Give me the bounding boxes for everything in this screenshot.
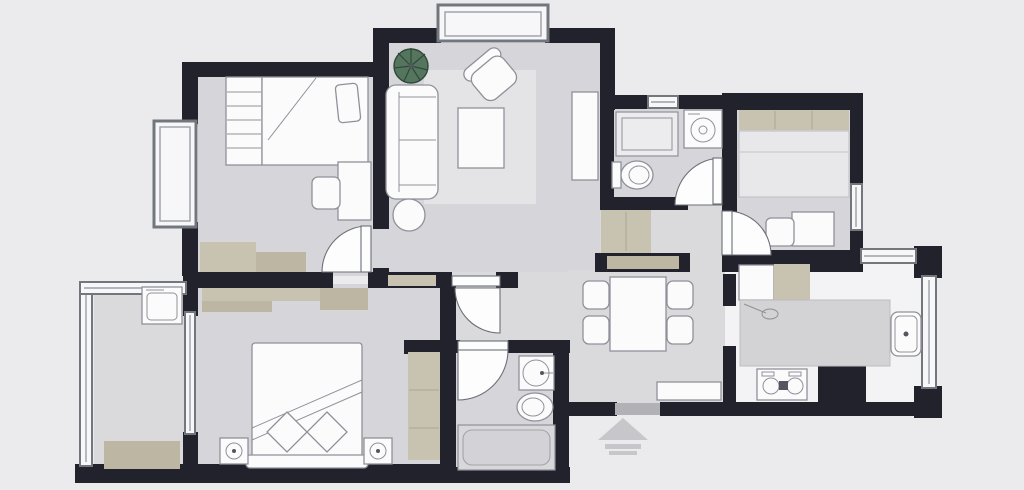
wardrobe: [202, 301, 272, 312]
headboard: [246, 455, 368, 468]
cabinet: [200, 242, 256, 272]
sink-drain: [904, 332, 909, 337]
wall: [183, 432, 198, 468]
wall: [182, 62, 198, 124]
dining-chair: [583, 316, 609, 344]
entry-threshold: [615, 403, 660, 415]
door-leaf: [458, 341, 508, 350]
door-leaf: [713, 158, 722, 204]
side-table: [393, 199, 425, 231]
faucet-head: [540, 371, 544, 375]
wall: [850, 93, 863, 186]
wall: [373, 28, 441, 43]
wardrobe: [739, 110, 849, 130]
door-leaf: [452, 276, 500, 286]
toilet-tank: [612, 162, 621, 188]
door-leaf: [361, 226, 371, 272]
wall: [440, 286, 456, 482]
wall-wardrobe-cap: [404, 340, 456, 354]
kitchen-cabinet: [774, 264, 810, 300]
bay-window-left: [154, 121, 198, 227]
nightstand-lamp-center: [376, 449, 380, 453]
sideboard: [607, 256, 679, 269]
wall: [183, 272, 333, 288]
wall-kitchen-slider-jamb: [723, 274, 736, 306]
wall: [914, 386, 942, 418]
desk-chair: [312, 177, 340, 209]
kitchen-counter: [740, 300, 890, 366]
shower-tray: [616, 112, 678, 156]
nightstand-lamp-center: [232, 449, 236, 453]
cabinet: [320, 288, 368, 310]
wall: [722, 93, 863, 110]
plant-center: [409, 64, 414, 69]
toilet: [621, 161, 653, 189]
desk-chair: [766, 218, 794, 246]
arrow-bar: [609, 451, 637, 455]
floor-mat: [104, 441, 180, 469]
tall-wardrobe: [408, 352, 440, 460]
wall: [508, 340, 570, 353]
cabinet: [256, 252, 306, 272]
bed: [739, 131, 849, 197]
dining-chair: [667, 281, 693, 309]
wall: [818, 366, 866, 404]
wall-kitchen-slider-jamb: [723, 346, 736, 404]
stove-control: [779, 381, 788, 390]
desk: [792, 212, 834, 246]
desk: [338, 162, 371, 220]
floor-plan: [0, 0, 1024, 490]
dining-table: [610, 277, 666, 351]
dining-chair: [667, 316, 693, 344]
bathtub-inner: [463, 430, 550, 465]
wall: [914, 246, 942, 278]
bay-window-top: [438, 5, 548, 43]
arrow-bar: [605, 444, 641, 449]
floor-door-gap-patch: [370, 224, 392, 274]
potted-plant: [394, 48, 428, 83]
wall: [600, 108, 614, 210]
pillow: [335, 83, 361, 123]
floor-plan-page: [0, 0, 1024, 490]
sliding-door-panel: [388, 275, 436, 286]
door-leaf: [722, 211, 732, 255]
refrigerator: [739, 265, 774, 300]
dining-chair: [583, 281, 609, 309]
wall: [660, 402, 918, 416]
wall: [182, 62, 374, 77]
sofa: [386, 85, 438, 199]
shelf-unit: [226, 77, 262, 165]
console-table: [657, 382, 721, 400]
wardrobe: [202, 288, 320, 301]
wall: [722, 95, 737, 213]
coffee-table: [458, 108, 504, 168]
tv-console: [572, 92, 598, 180]
